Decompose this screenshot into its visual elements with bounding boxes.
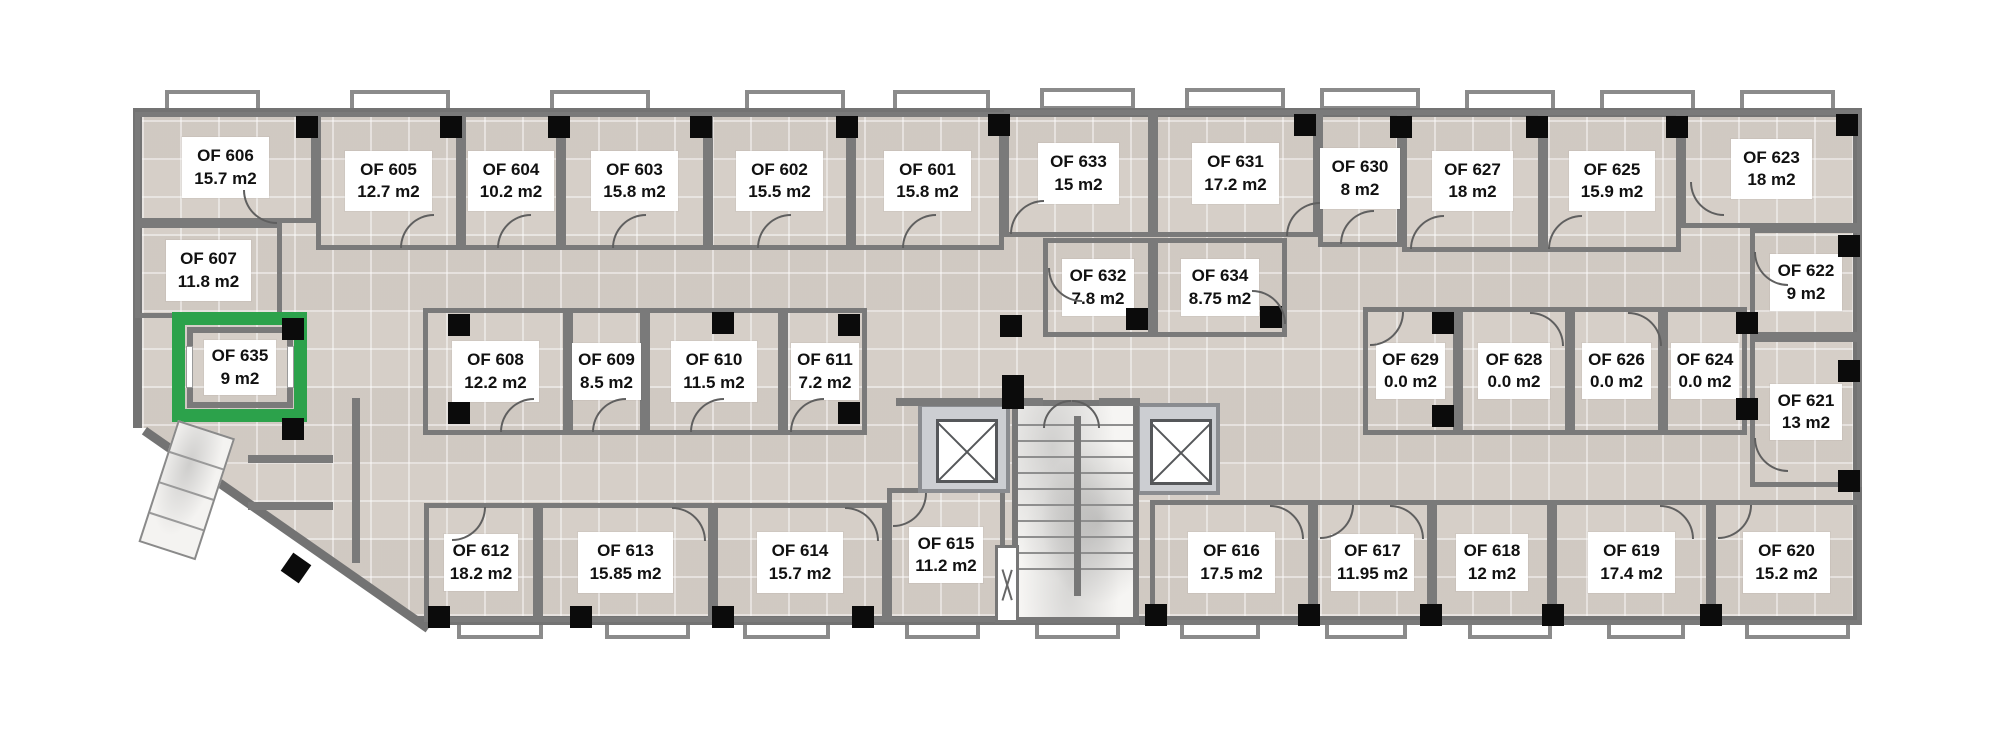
room-of-606[interactable]: OF 60615.7 m2 bbox=[135, 112, 316, 223]
window bbox=[1320, 88, 1420, 110]
room-label: OF 60512.7 m2 bbox=[345, 151, 431, 211]
room-of-635-selected[interactable]: OF 6359 m2 bbox=[187, 327, 293, 408]
column bbox=[1838, 235, 1860, 257]
room-label: OF 61218.2 m2 bbox=[444, 534, 518, 590]
room-label: OF 61011.5 m2 bbox=[671, 341, 756, 401]
column bbox=[1420, 604, 1442, 626]
room-label: OF 6260.0 m2 bbox=[1582, 343, 1651, 399]
column bbox=[1736, 398, 1758, 420]
wall-segment bbox=[352, 398, 360, 563]
column bbox=[296, 116, 318, 138]
duct-shaft-icon bbox=[995, 545, 1019, 623]
column bbox=[1432, 312, 1454, 334]
room-label: OF 6117.2 m2 bbox=[791, 343, 859, 399]
column bbox=[448, 314, 470, 336]
column bbox=[282, 318, 304, 340]
column bbox=[548, 116, 570, 138]
column bbox=[428, 606, 450, 628]
room-label: OF 6240.0 m2 bbox=[1671, 343, 1740, 399]
room-label: OF 6098.5 m2 bbox=[572, 343, 641, 399]
room-of-607[interactable]: OF 60711.8 m2 bbox=[135, 223, 282, 318]
column bbox=[1145, 604, 1167, 626]
window bbox=[1185, 88, 1285, 110]
column bbox=[1294, 114, 1316, 136]
door-opening bbox=[186, 346, 193, 388]
room-label: OF 61711.95 m2 bbox=[1331, 534, 1414, 590]
room-label: OF 60615.7 m2 bbox=[182, 137, 268, 197]
elevator-shaft bbox=[1136, 403, 1220, 495]
room-label: OF 60215.5 m2 bbox=[736, 151, 822, 211]
column bbox=[440, 116, 462, 138]
door-opening bbox=[287, 346, 294, 388]
column bbox=[1836, 114, 1858, 136]
room-label: OF 62015.2 m2 bbox=[1743, 532, 1829, 592]
column bbox=[282, 418, 304, 440]
room-label: OF 63315 m2 bbox=[1038, 143, 1119, 203]
room-label: OF 60812.2 m2 bbox=[452, 341, 538, 401]
room-label: OF 6290.0 m2 bbox=[1376, 343, 1445, 399]
room-label: OF 62318 m2 bbox=[1731, 139, 1812, 199]
room-label: OF 60315.8 m2 bbox=[591, 151, 677, 211]
column bbox=[1002, 375, 1024, 409]
column bbox=[1390, 116, 1412, 138]
room-label: OF 6359 m2 bbox=[204, 340, 277, 394]
column bbox=[690, 116, 712, 138]
column bbox=[1736, 312, 1758, 334]
room-label: OF 60711.8 m2 bbox=[166, 240, 251, 300]
column bbox=[988, 114, 1010, 136]
stair-stringer bbox=[1074, 416, 1081, 596]
room-label: OF 61415.7 m2 bbox=[757, 532, 843, 592]
column bbox=[1432, 405, 1454, 427]
wall-segment bbox=[1099, 398, 1140, 406]
room-of-608[interactable]: OF 60812.2 m2 bbox=[423, 308, 568, 435]
staircase bbox=[1012, 400, 1139, 623]
column bbox=[1666, 116, 1688, 138]
column bbox=[712, 312, 734, 334]
elevator-icon bbox=[1150, 419, 1212, 485]
column bbox=[712, 606, 734, 628]
wall-segment bbox=[248, 455, 333, 463]
room-label: OF 61917.4 m2 bbox=[1588, 532, 1674, 592]
room-label: OF 61511.2 m2 bbox=[909, 527, 982, 583]
column bbox=[1298, 604, 1320, 626]
column bbox=[1838, 360, 1860, 382]
column bbox=[281, 553, 312, 584]
room-of-624[interactable]: OF 6240.0 m2 bbox=[1663, 307, 1747, 435]
wall-segment bbox=[248, 502, 333, 510]
column bbox=[838, 402, 860, 424]
column bbox=[1838, 470, 1860, 492]
elevator-shaft bbox=[918, 403, 1010, 493]
room-label: OF 60410.2 m2 bbox=[468, 151, 554, 211]
column bbox=[1526, 116, 1548, 138]
column bbox=[448, 402, 470, 424]
column bbox=[852, 606, 874, 628]
floor-plan-canvas: OF 60615.7 m2 OF 60512.7 m2 OF 60410.2 m… bbox=[0, 0, 2000, 744]
window bbox=[1040, 88, 1135, 110]
column bbox=[1700, 604, 1722, 626]
column bbox=[1000, 315, 1022, 337]
room-label: OF 61812 m2 bbox=[1456, 534, 1529, 590]
room-label: OF 6348.75 m2 bbox=[1181, 259, 1259, 315]
room-label: OF 61617.5 m2 bbox=[1188, 532, 1274, 592]
room-of-618[interactable]: OF 61812 m2 bbox=[1432, 500, 1552, 625]
column bbox=[1542, 604, 1564, 626]
column bbox=[1126, 308, 1148, 330]
room-label: OF 63117.2 m2 bbox=[1192, 143, 1278, 203]
room-label: OF 62718 m2 bbox=[1432, 151, 1513, 211]
room-label: OF 60115.8 m2 bbox=[884, 151, 970, 211]
room-label: OF 61315.85 m2 bbox=[578, 532, 674, 592]
room-label: OF 6308 m2 bbox=[1320, 148, 1401, 208]
room-label: OF 62113 m2 bbox=[1770, 384, 1843, 440]
elevator-icon bbox=[936, 419, 998, 483]
column bbox=[838, 314, 860, 336]
room-label: OF 6280.0 m2 bbox=[1478, 343, 1551, 399]
column bbox=[570, 606, 592, 628]
room-label: OF 62515.9 m2 bbox=[1569, 151, 1655, 211]
column bbox=[836, 116, 858, 138]
